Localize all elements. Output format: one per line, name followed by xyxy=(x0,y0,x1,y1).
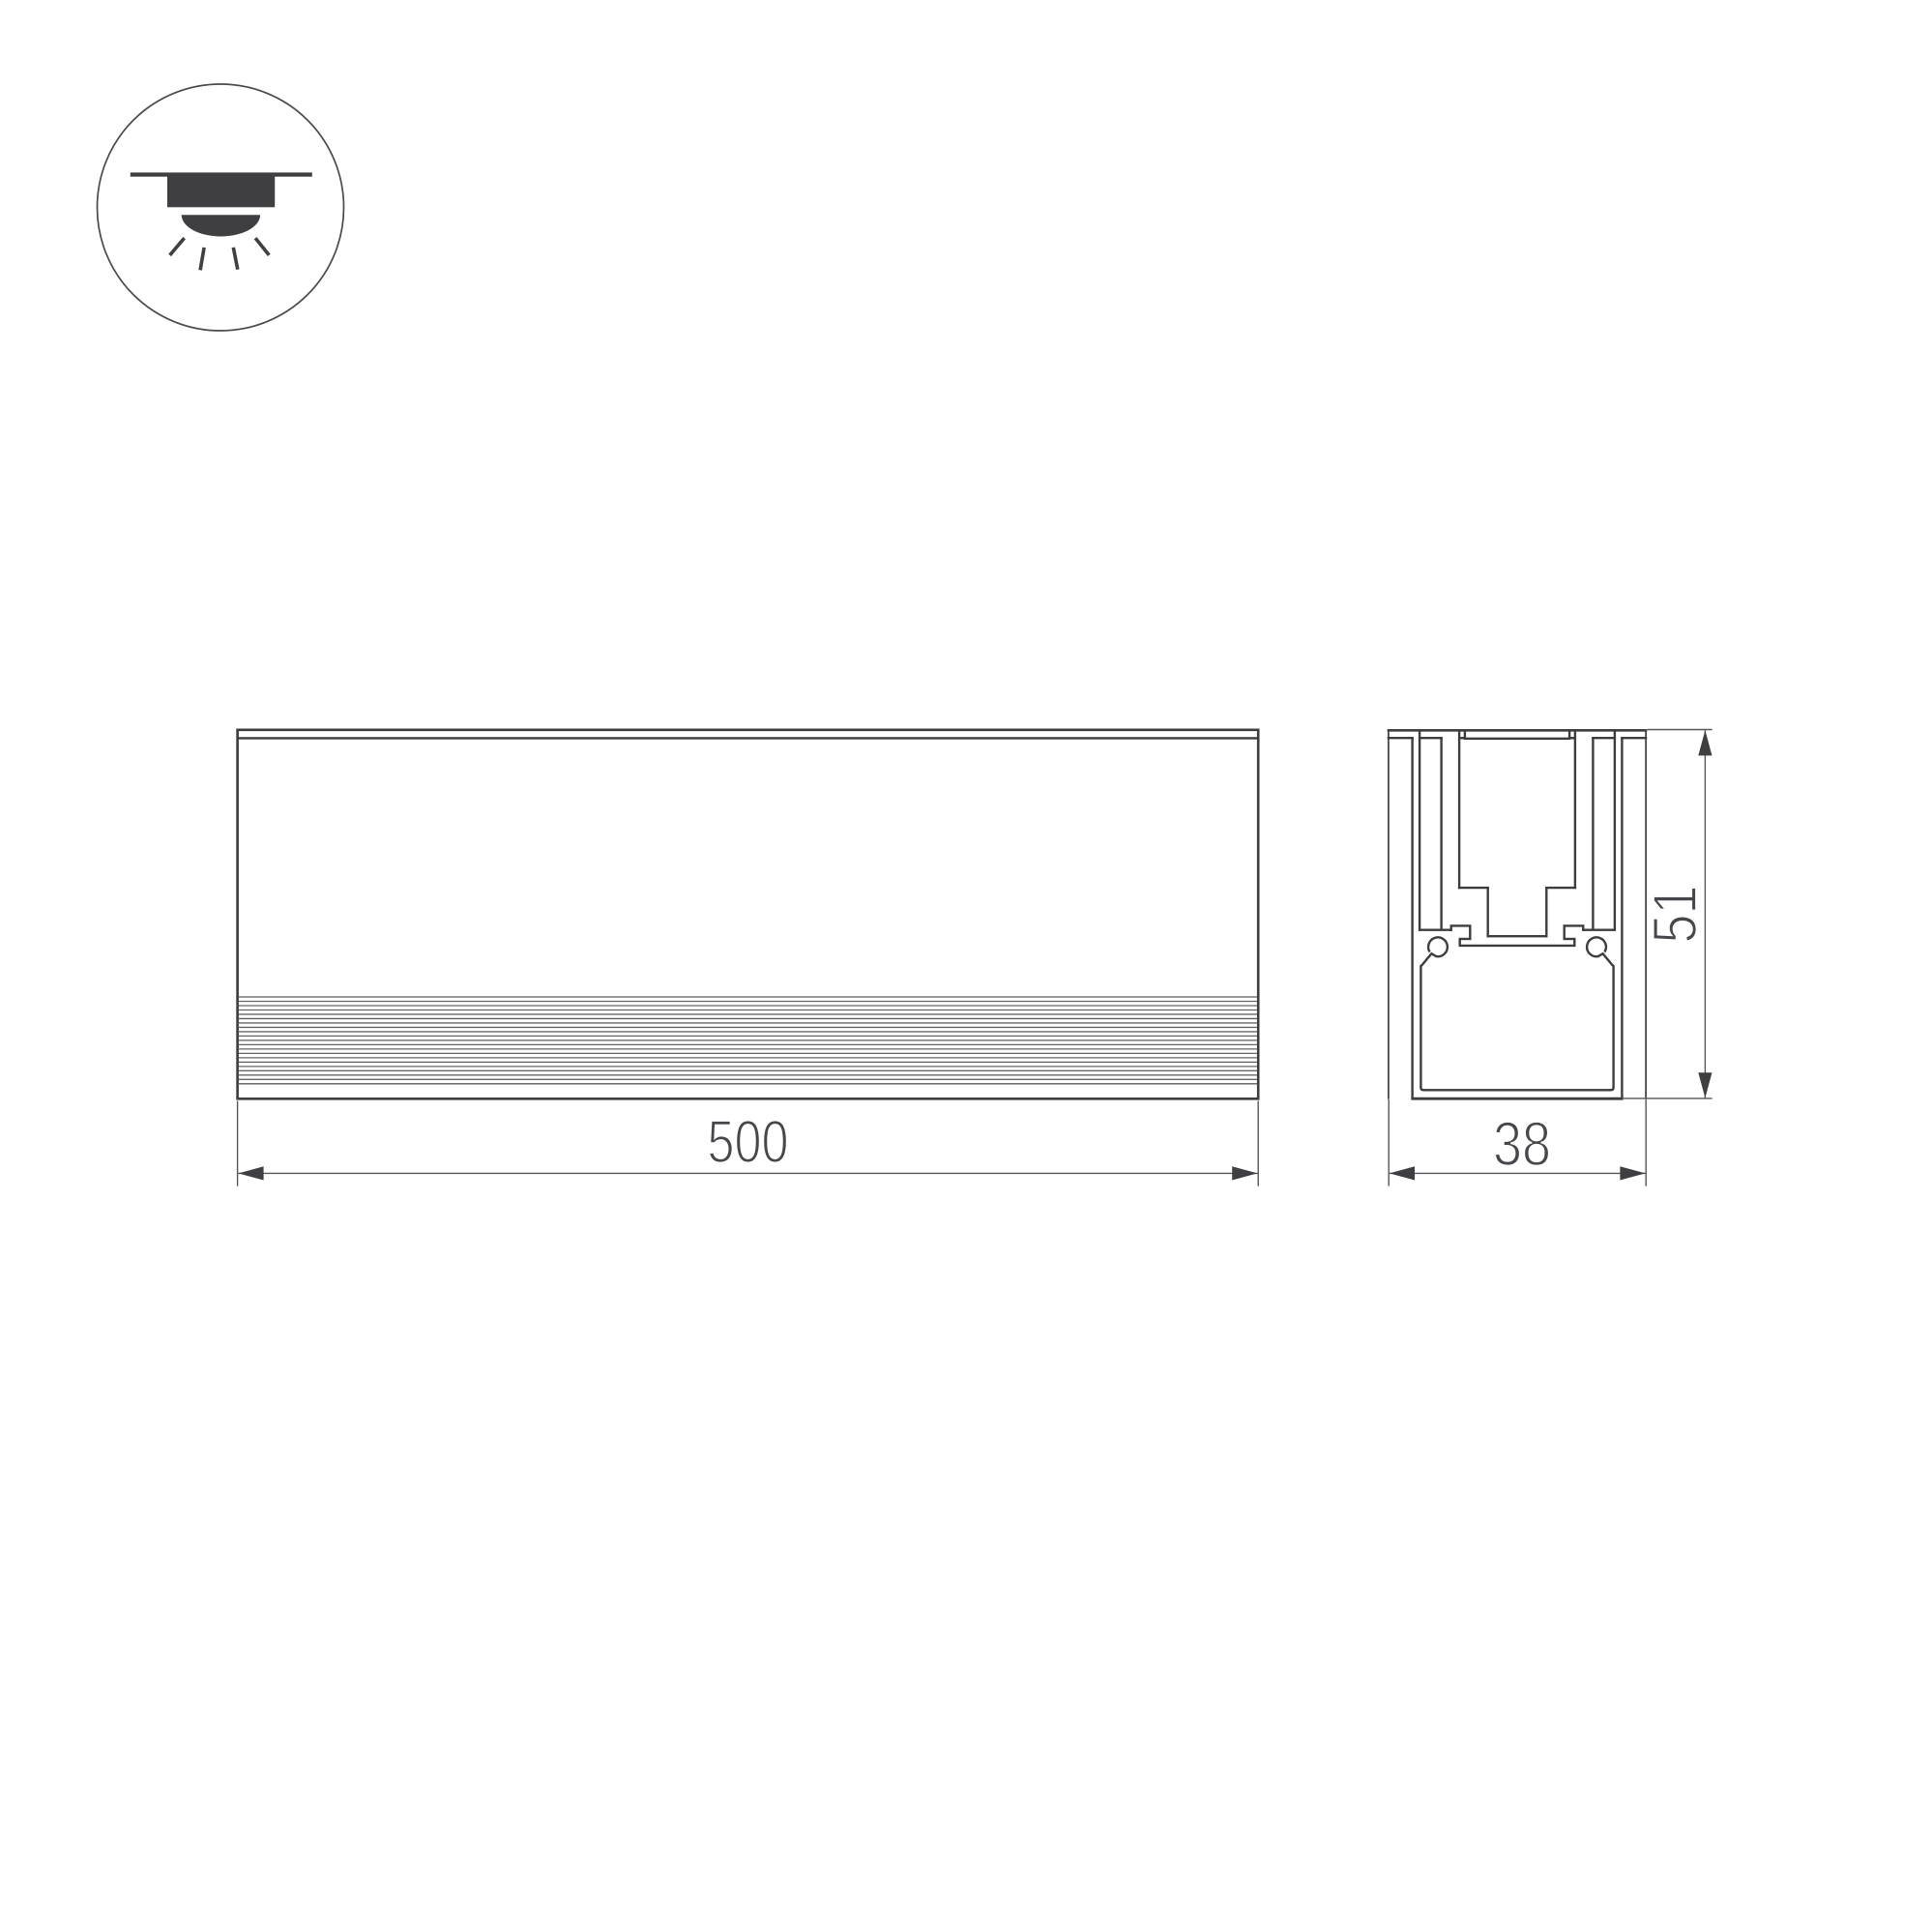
svg-text:51: 51 xyxy=(1640,886,1710,944)
svg-text:500: 500 xyxy=(708,1109,789,1176)
svg-text:38: 38 xyxy=(1493,1109,1551,1179)
